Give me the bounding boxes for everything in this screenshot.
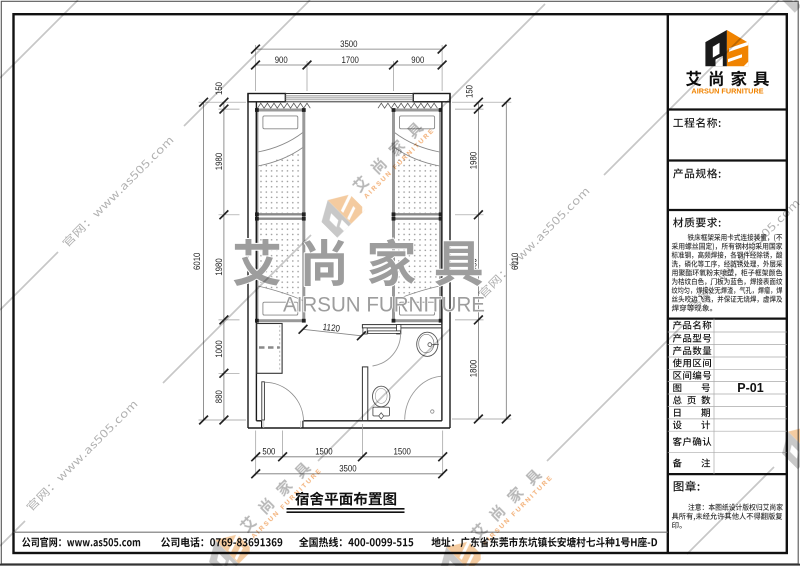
svg-text:1000: 1000 (213, 340, 224, 357)
svg-text:AIRSUN FURNITURE: AIRSUN FURNITURE (283, 294, 485, 317)
svg-text:150: 150 (463, 85, 474, 98)
svg-text:3500: 3500 (339, 463, 356, 474)
svg-text:1800: 1800 (467, 360, 478, 377)
svg-text:P-01: P-01 (737, 381, 763, 395)
svg-text:1700: 1700 (342, 54, 359, 65)
svg-text:AIRSUN FURNITURE: AIRSUN FURNITURE (691, 86, 763, 95)
svg-text:1980: 1980 (213, 258, 224, 275)
svg-text:6010: 6010 (191, 253, 202, 270)
svg-text:1980: 1980 (213, 153, 224, 170)
svg-text:1120: 1120 (322, 321, 341, 334)
svg-text:1500: 1500 (394, 445, 411, 456)
svg-text:500: 500 (262, 445, 275, 456)
svg-text:1980: 1980 (467, 152, 478, 169)
svg-text:880: 880 (213, 390, 224, 403)
svg-text:900: 900 (275, 54, 288, 65)
svg-text:900: 900 (411, 54, 424, 65)
svg-text:3500: 3500 (340, 38, 357, 49)
